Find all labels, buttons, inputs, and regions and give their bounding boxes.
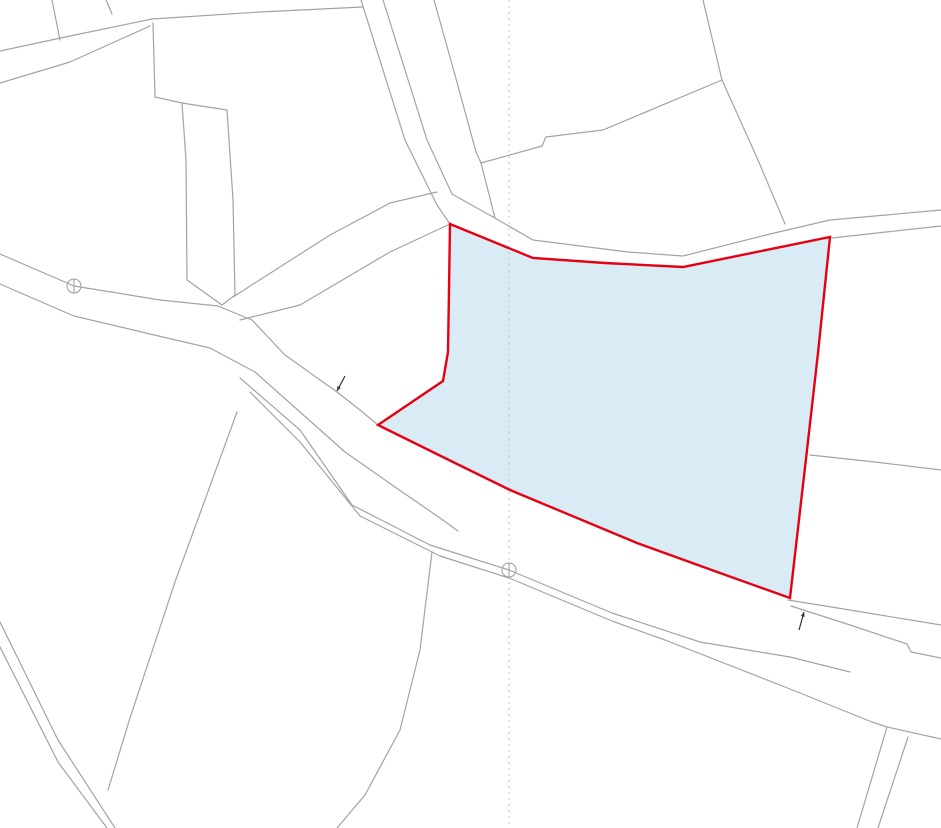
boundary-line-topleft-long-boundary xyxy=(152,7,363,19)
boundary-line-parcel-179-2-east xyxy=(153,23,222,305)
cadastral-map xyxy=(0,0,941,828)
boundary-line-parcel-182-4-182-1 xyxy=(810,455,941,470)
boundary-line-main-road-north-edge xyxy=(0,254,378,425)
cadastral-map-canvas xyxy=(0,0,941,828)
boundary-line-road-southeast-east xyxy=(878,737,908,828)
boundary-line-road-top-west-line xyxy=(361,0,450,224)
boundary-line-parcel-13-14 xyxy=(108,412,237,790)
boundary-line-parcel-178-2-east xyxy=(434,0,495,218)
boundary-line-water-strip-east-south xyxy=(791,606,941,658)
boundary-line-topleft-sliver-2 xyxy=(106,0,112,14)
boundary-line-parcel-180-6-top xyxy=(182,103,227,110)
boundary-line-parcel-178-3-south xyxy=(481,80,722,163)
boundary-line-parcel-180-6-east xyxy=(222,110,235,305)
boundary-line-parcel-14-east xyxy=(337,552,432,828)
water-leader-arrow-icon xyxy=(337,376,345,391)
boundary-line-road-upper-south-east xyxy=(832,226,941,238)
boundary-line-channel-southwest-north xyxy=(0,622,115,828)
boundary-line-topleft-sliver-1 xyxy=(52,0,60,40)
survey-marker-icon xyxy=(67,279,81,293)
highlighted-parcel-fill-181-2 xyxy=(378,224,830,598)
boundary-line-road-upper-north-edge xyxy=(452,194,941,256)
survey-marker-icon xyxy=(502,563,516,577)
boundary-line-main-road-south-edge xyxy=(0,284,458,531)
boundary-line-parcel-176-east xyxy=(722,80,785,224)
boundary-line-parcel-178-3-east xyxy=(703,0,722,80)
boundary-line-channel-southwest-south xyxy=(0,647,107,828)
water-leader-arrow-icon xyxy=(799,612,805,630)
